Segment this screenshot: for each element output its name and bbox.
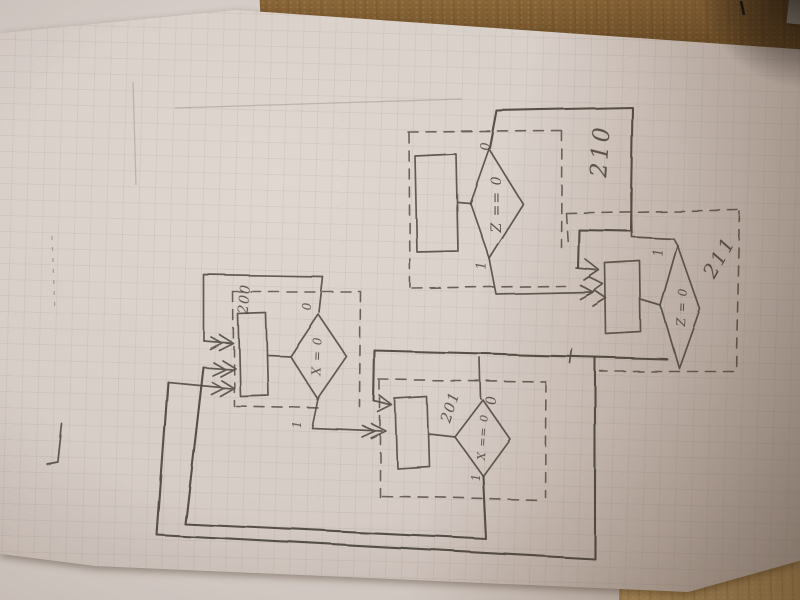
branch-label-211-1: 1 — [652, 247, 667, 256]
process-box-211 — [605, 261, 641, 334]
branch-1-line-211 — [631, 193, 678, 246]
connector-201 — [429, 434, 455, 437]
process-box-201 — [395, 397, 429, 468]
branch-label-201-0: 0 — [484, 395, 500, 405]
state-label-200: 200 — [235, 283, 254, 314]
dark-edge-mark — [741, 1, 744, 15]
branch-label-210-0: 0 — [479, 141, 494, 150]
branch-label-200-1: 1 — [290, 420, 304, 429]
paper-crease — [175, 99, 462, 108]
connector-210 — [458, 202, 470, 203]
stray-pen-mark — [47, 424, 62, 464]
process-box-210 — [415, 154, 458, 252]
photo-scene: 210 Z == 0 0 1 211 Z = 0 1 200 X = 0 0 1… — [0, 0, 800, 600]
connector-200 — [268, 355, 290, 356]
branch-label-210-1: 1 — [475, 260, 490, 269]
branch-label-200-0: 0 — [300, 302, 314, 311]
stray-faint-dashes — [52, 236, 55, 312]
arrow-into-200-top — [204, 335, 233, 350]
junction-tick — [570, 349, 572, 363]
branch-label-201-1: 1 — [469, 473, 483, 482]
process-box-200 — [238, 313, 268, 396]
inner-loop-line — [185, 367, 486, 539]
return-line-long — [374, 351, 667, 401]
state-label-210: 210 — [586, 124, 616, 179]
condition-label-211: Z = 0 — [674, 287, 690, 326]
branch-1-line-200 — [312, 399, 382, 431]
arrow-into-200-middle — [203, 360, 235, 376]
paper-crease — [133, 82, 136, 185]
condition-label-200: X = 0 — [309, 336, 324, 375]
connector-211 — [641, 300, 661, 306]
arrow-into-201-top — [374, 396, 392, 412]
branch-0-line-201 — [480, 358, 481, 399]
branch-1-line-210 — [489, 258, 590, 294]
condition-label-210: Z == 0 — [489, 176, 505, 233]
